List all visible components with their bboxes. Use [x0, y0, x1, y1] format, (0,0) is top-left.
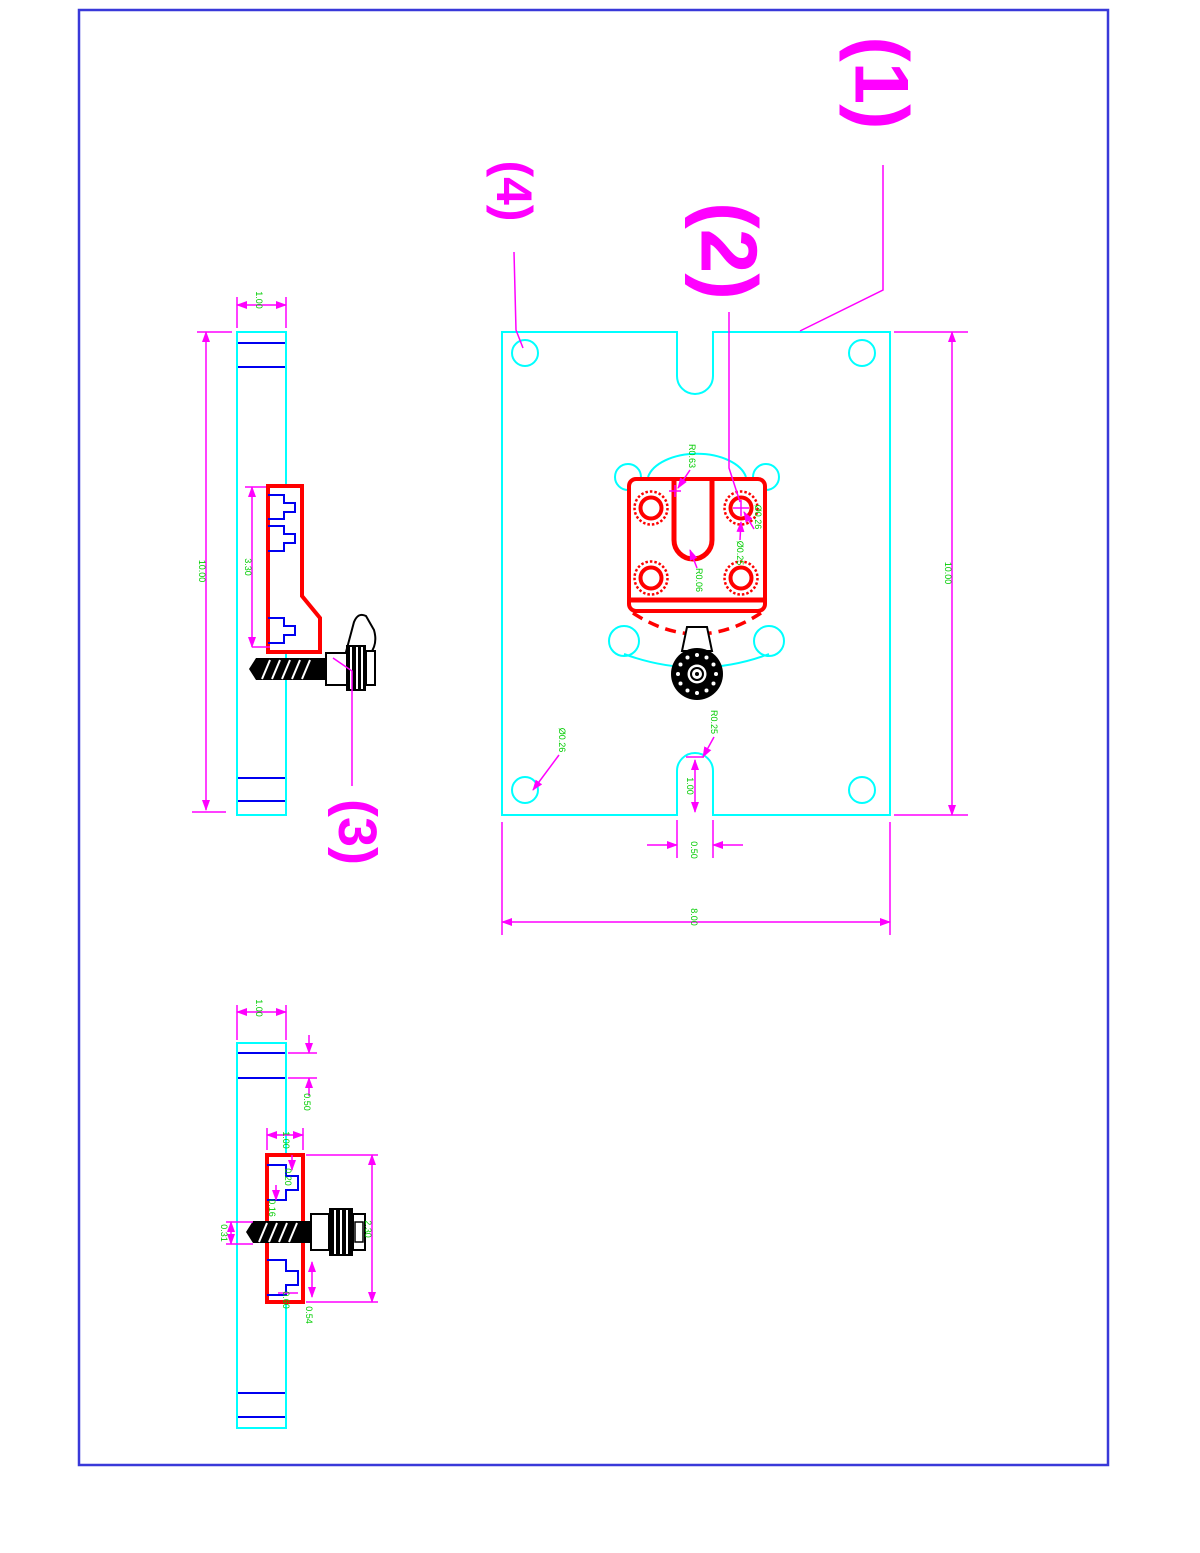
dim-text-step-a: 0.20: [283, 1168, 293, 1186]
dim-text-bracket-height: 2.30: [363, 1220, 373, 1238]
dim-slot-height: 1.00: [685, 757, 704, 812]
corner-hole: [849, 777, 875, 803]
drawing-page: 10.00 8.00 0.50 1.00 R0.25: [0, 0, 1200, 1553]
dim-text-side-thickness: 1.00: [254, 291, 264, 309]
dim-text-slot-width: 0.50: [689, 841, 699, 859]
leader-callout-1: [800, 165, 883, 331]
corner-hole: [849, 340, 875, 366]
dim-main-width: 8.00: [502, 822, 890, 935]
dim-side-height: 10.00: [192, 332, 232, 812]
dim-slot-width: 0.50: [647, 820, 743, 859]
dim-text-main-width: 8.00: [689, 908, 699, 926]
callout-label-2: (2): [685, 202, 774, 300]
section-view-bottom: 1.00 0.50 1.00 0.20 0.16 2: [219, 999, 378, 1428]
corner-hole: [512, 340, 538, 366]
dim-text-step-b: 0.16: [267, 1199, 277, 1217]
dim-text-arc-radius: R0.63: [687, 444, 697, 468]
dim-text-slot-width2: 0.54: [304, 1306, 314, 1324]
drawing-frame: [79, 10, 1108, 1465]
dim-text-side-span: 3.30: [243, 558, 253, 576]
dim-text-main-height: 10.00: [943, 562, 953, 585]
pad-corner-arc: [609, 626, 639, 656]
leader-callout-4: [514, 252, 523, 348]
dim-text-uslot-radius: R0.06: [694, 568, 704, 592]
dim-main-height: 10.00: [894, 332, 968, 815]
dim-text-slot-depth: 0.60: [281, 1291, 291, 1309]
thumbscrew-section-view: [246, 1208, 365, 1256]
thumbscrew-end-view: [671, 627, 723, 700]
dim-section-thickness: 1.00: [237, 999, 286, 1040]
cad-drawing-canvas: 10.00 8.00 0.50 1.00 R0.25: [0, 0, 1200, 1553]
dim-side-thickness: 1.00: [237, 291, 286, 328]
dim-text-slot-height: 1.00: [685, 777, 695, 795]
callout-label-3: (3): [327, 799, 387, 865]
dim-groove-offset: 0.50: [288, 1035, 317, 1111]
dim-side-bracket-span: 3.30: [243, 487, 270, 647]
dim-text-side-height: 10.00: [197, 560, 207, 583]
callout-label-4: (4): [486, 160, 542, 221]
dim-text-pad-hole: Ø0.26: [753, 505, 763, 530]
dim-text-screw-dia: 0.31: [219, 1224, 229, 1242]
dim-text-corner-hole: Ø0.26: [557, 728, 567, 753]
side-view-top: 1.00 10.00 3.30: [192, 291, 375, 815]
pad-corner-arc: [754, 626, 784, 656]
dim-bracket-width: 1.00: [267, 1128, 303, 1150]
dim-text-sec-thickness: 1.00: [254, 999, 264, 1017]
leader-callout-2: [729, 312, 740, 502]
dim-text-groove-offset: 0.50: [302, 1093, 312, 1111]
dim-text-slot-radius: R0.25: [709, 710, 719, 734]
dim-slot-radius: R0.25: [703, 710, 719, 757]
dim-text-pad-hole2: Ø0.25: [735, 541, 745, 566]
dim-text-bracket-width: 1.00: [281, 1131, 291, 1149]
dim-corner-hole: Ø0.26: [533, 728, 567, 790]
callout-label-1: (1): [839, 37, 924, 130]
corner-hole: [512, 777, 538, 803]
